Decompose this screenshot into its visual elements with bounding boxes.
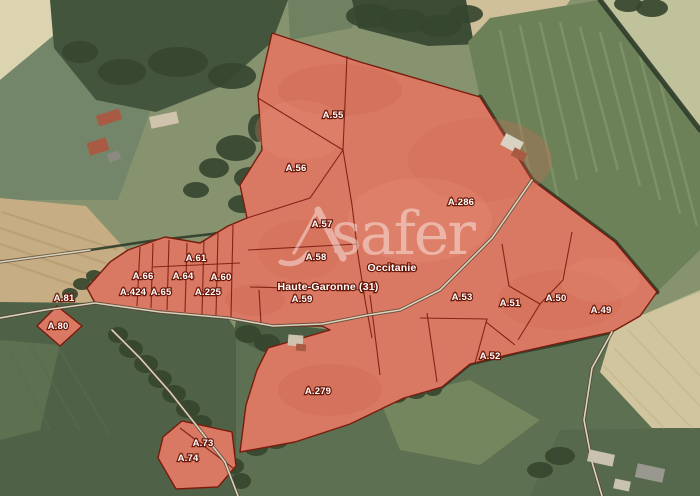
tree-blob xyxy=(199,158,229,178)
tree-blob xyxy=(216,135,256,161)
tree-blob xyxy=(527,462,553,478)
safer-watermark-text: safer xyxy=(331,199,476,269)
parcel-label: A.80 xyxy=(48,321,69,332)
region-label: Haute-Garonne (31) xyxy=(277,281,378,293)
parcel-label: A.286 xyxy=(448,197,474,208)
map-container: saferA.55A.56A.57A.286A.58A.61A.66A.64A.… xyxy=(0,0,700,496)
parcel-label: A.225 xyxy=(195,287,222,298)
parcel-label: A.61 xyxy=(186,253,207,264)
tree-blob xyxy=(62,41,98,63)
tree-blob xyxy=(208,63,256,89)
parcel-label: A.52 xyxy=(480,351,501,362)
parcel-label: A.81 xyxy=(54,293,75,304)
tree-blob xyxy=(545,447,575,465)
parcel-label: A.279 xyxy=(305,386,331,397)
tree-blob xyxy=(98,59,146,85)
aerial-map: saferA.55A.56A.57A.286A.58A.61A.66A.64A.… xyxy=(0,0,700,496)
parcel-label: A.59 xyxy=(292,294,313,305)
parcel-label: A.53 xyxy=(452,292,473,303)
parcel-label: A.64 xyxy=(173,271,194,282)
parcel-label: A.57 xyxy=(312,219,333,230)
parcel-label: A.66 xyxy=(133,271,154,282)
shading-blob xyxy=(255,100,345,160)
parcel-label: A.73 xyxy=(193,438,214,449)
region-label: Occitanie xyxy=(367,262,416,274)
building xyxy=(296,344,307,352)
parcel-label: A.65 xyxy=(151,287,172,298)
tree-blob xyxy=(449,5,483,23)
parcel-label: A.74 xyxy=(178,453,199,464)
parcel-label: A.49 xyxy=(591,305,612,316)
parcel-label: A.58 xyxy=(306,252,327,263)
parcel-label: A.424 xyxy=(120,287,147,298)
shading-blob xyxy=(560,258,640,302)
parcel-label: A.55 xyxy=(323,110,344,121)
parcel-label: A.50 xyxy=(546,293,567,304)
tree-blob xyxy=(183,182,209,198)
shading-blob xyxy=(225,284,285,316)
parcel-label: A.56 xyxy=(286,163,307,174)
parcel-label: A.60 xyxy=(211,272,232,283)
tree-blob xyxy=(148,47,208,77)
parcel-label: A.51 xyxy=(500,298,521,309)
